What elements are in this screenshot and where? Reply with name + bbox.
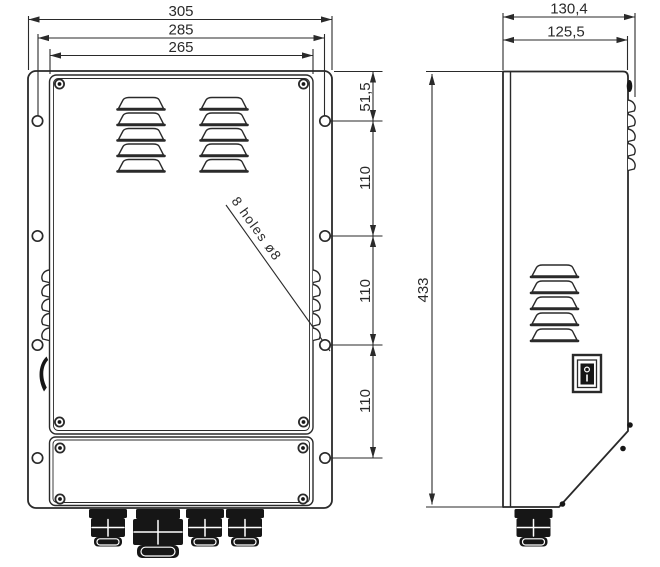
corner-screw xyxy=(299,79,308,88)
dim-label-side-overall-height: 433 xyxy=(415,277,432,302)
enclosure-dimensional-drawing: 305 285 265 51,5 110 110 110 8 holes ø8 … xyxy=(0,0,660,567)
dim-label-side-overall-depth: 130,4 xyxy=(550,1,588,18)
dim-label-hole-pitch-1: 110 xyxy=(357,166,374,190)
hinge-bump xyxy=(560,501,566,507)
cable-glands xyxy=(89,509,264,558)
side-louver-vents xyxy=(531,265,578,341)
dim-label-front-hole-pitch-width: 285 xyxy=(168,22,193,39)
corner-screw xyxy=(55,443,64,452)
corner-screw xyxy=(299,417,308,426)
hinge-bump xyxy=(627,80,633,92)
cable-gland xyxy=(515,509,553,547)
corner-screw xyxy=(298,494,307,503)
corner-screw xyxy=(298,443,307,452)
cable-gland-large xyxy=(133,509,183,558)
hinge-bump xyxy=(627,422,633,428)
right-edge-serration xyxy=(313,270,320,341)
hinge-bump xyxy=(620,446,626,452)
left-edge-serration xyxy=(42,270,49,341)
corner-screw xyxy=(55,417,64,426)
dim-label-top-to-hole1: 51,5 xyxy=(357,82,374,111)
corner-screw xyxy=(55,494,64,503)
cable-gland xyxy=(89,509,127,547)
lower-panel xyxy=(50,437,314,506)
side-view xyxy=(503,72,635,547)
power-switch-icon xyxy=(573,355,601,392)
cable-gland xyxy=(186,509,224,547)
door-latch xyxy=(40,357,49,392)
front-view xyxy=(28,71,332,558)
dim-label-front-overall-width: 305 xyxy=(168,3,193,20)
cable-gland xyxy=(226,509,264,547)
dim-label-hole-pitch-3: 110 xyxy=(357,389,374,413)
dim-label-hole-pitch-2: 110 xyxy=(357,279,374,303)
dim-label-side-body-depth: 125,5 xyxy=(547,24,585,41)
front-louver-vents xyxy=(118,98,248,172)
dim-label-front-door-width: 265 xyxy=(168,39,193,56)
mounting-holes xyxy=(32,116,330,463)
holes-note-label: 8 holes ø8 xyxy=(229,194,285,264)
lower-panel-seam xyxy=(53,440,310,503)
corner-screw xyxy=(55,79,64,88)
technical-drawing-canvas: 305 285 265 51,5 110 110 110 8 holes ø8 … xyxy=(0,0,660,567)
side-front-edge-serration xyxy=(628,100,635,171)
